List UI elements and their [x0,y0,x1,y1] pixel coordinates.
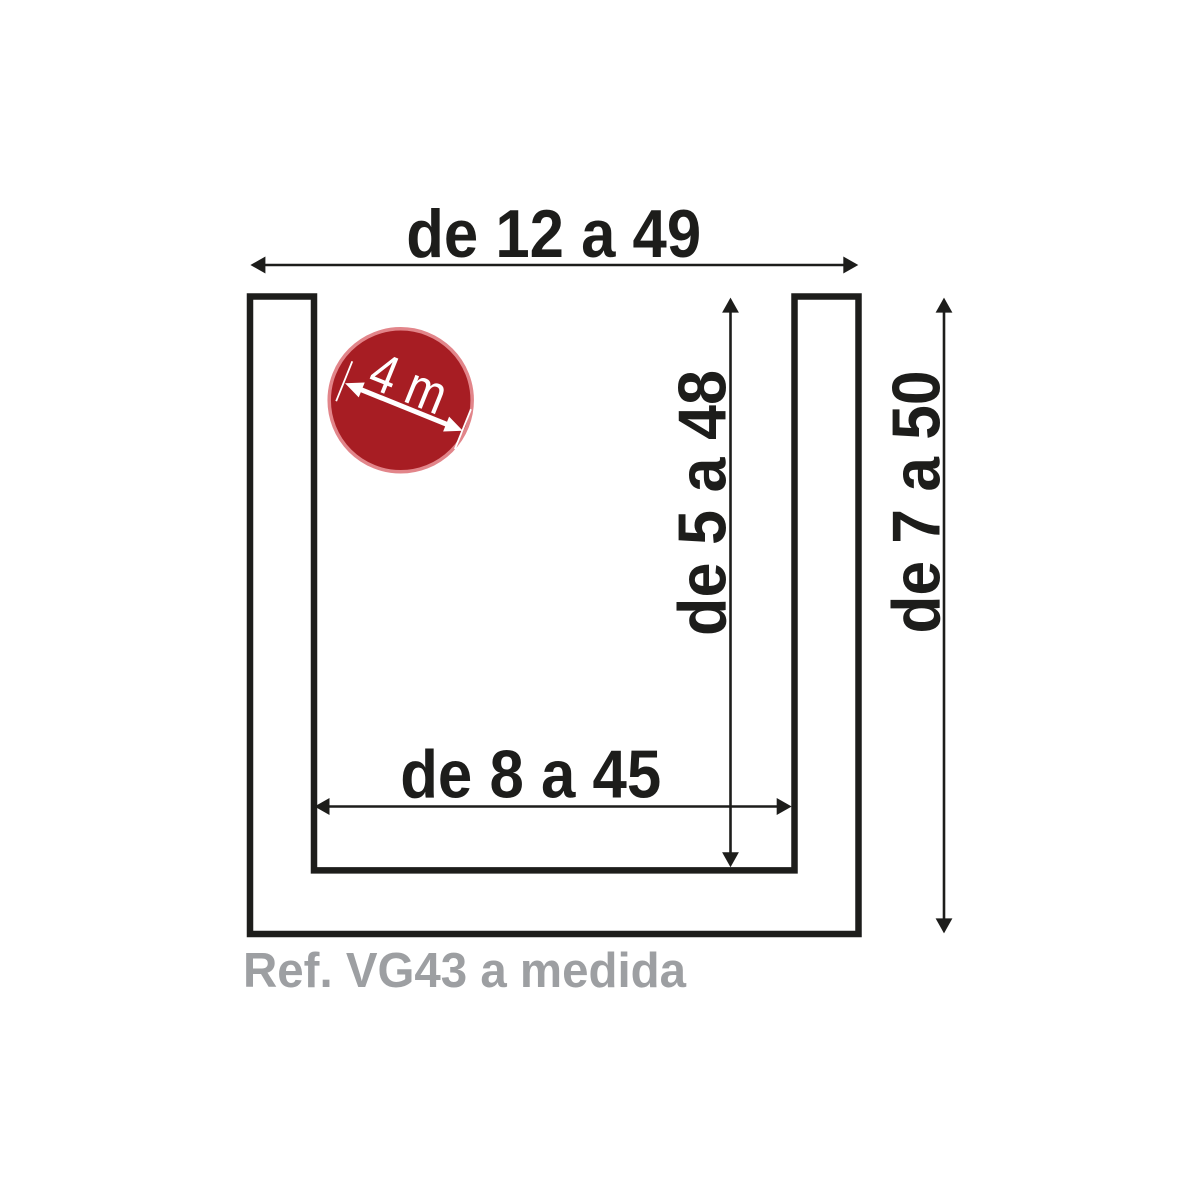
svg-text:Ref. VG43 a medida: Ref. VG43 a medida [243,944,687,998]
svg-text:de 8 a 45: de 8 a 45 [400,737,661,813]
svg-text:de 12 a 49: de 12 a 49 [406,196,701,272]
svg-text:de 7 a 50: de 7 a 50 [879,371,955,634]
svg-text:de 5 a 48: de 5 a 48 [665,370,741,636]
